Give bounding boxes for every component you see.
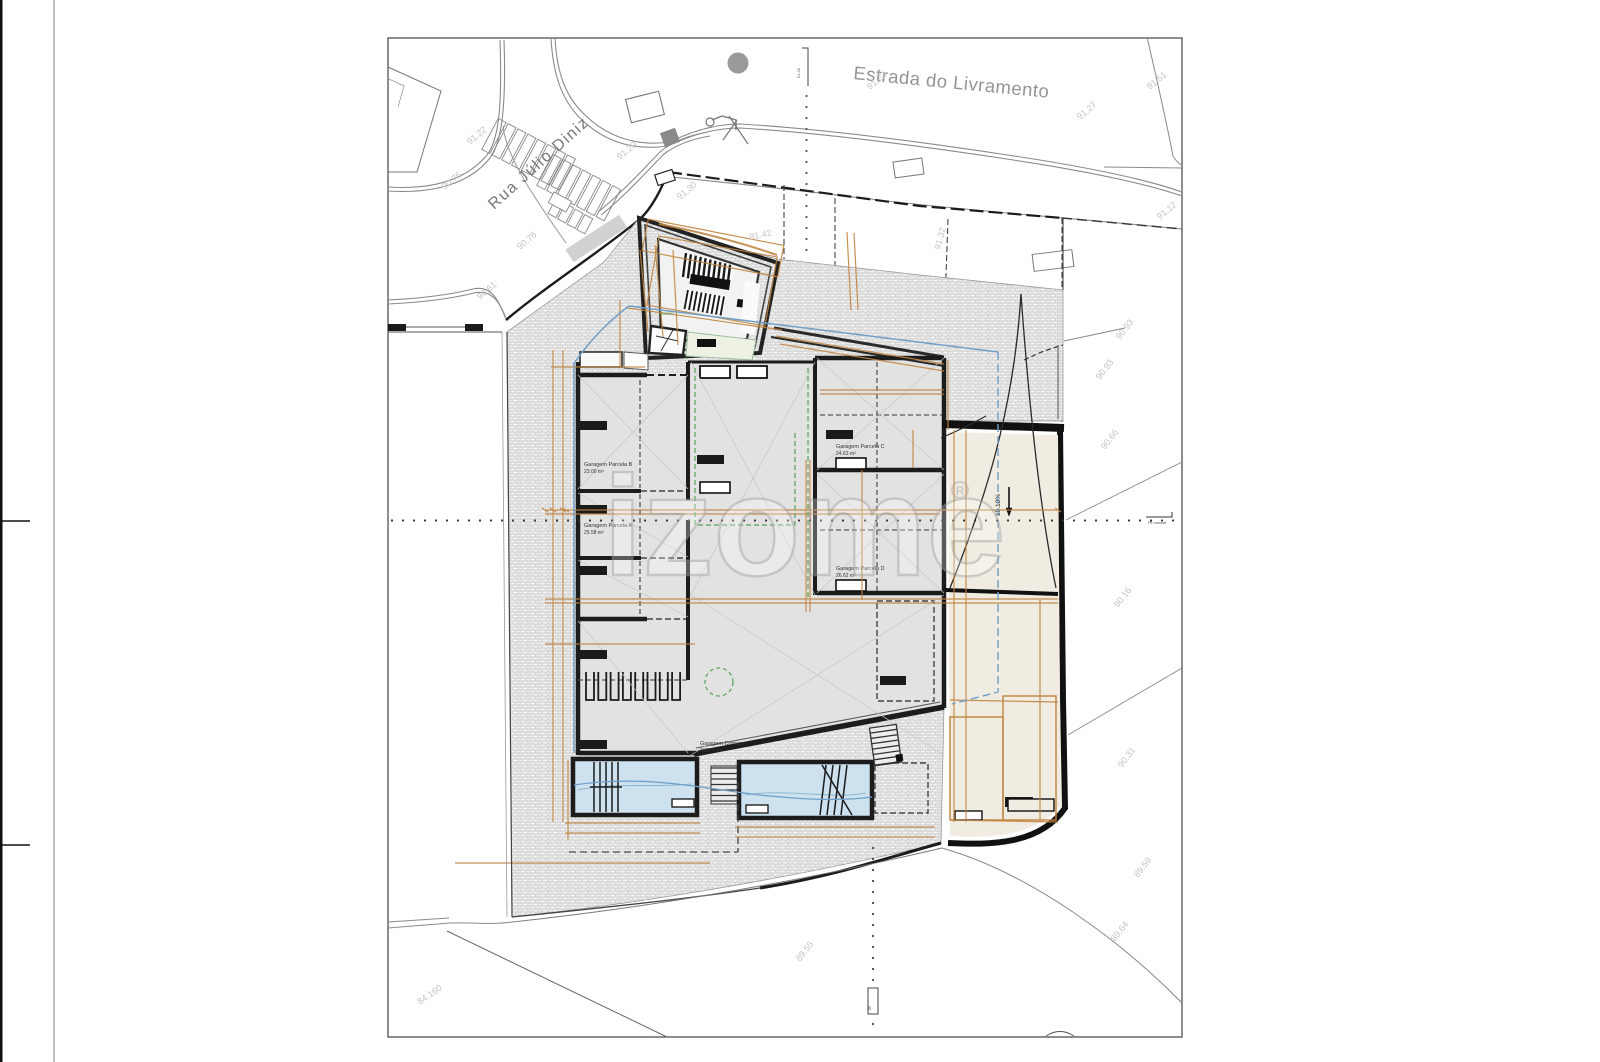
svg-text:89: 89 <box>868 1006 872 1010</box>
svg-text:91.40: 91.40 <box>796 67 801 78</box>
svg-text:PE consult: PE consult <box>1148 521 1167 525</box>
svg-text:Garagem Comum: Garagem Comum <box>700 741 744 747</box>
svg-text:R: R <box>956 484 965 498</box>
svg-text:23.00 m²: 23.00 m² <box>584 469 604 475</box>
svg-text:166.76 m²: 166.76 m² <box>700 748 723 754</box>
svg-text:25.58 m²: 25.58 m² <box>584 530 604 536</box>
svg-text:izome: izome <box>603 447 1005 606</box>
svg-text:Jardim: Jardim <box>660 311 674 316</box>
